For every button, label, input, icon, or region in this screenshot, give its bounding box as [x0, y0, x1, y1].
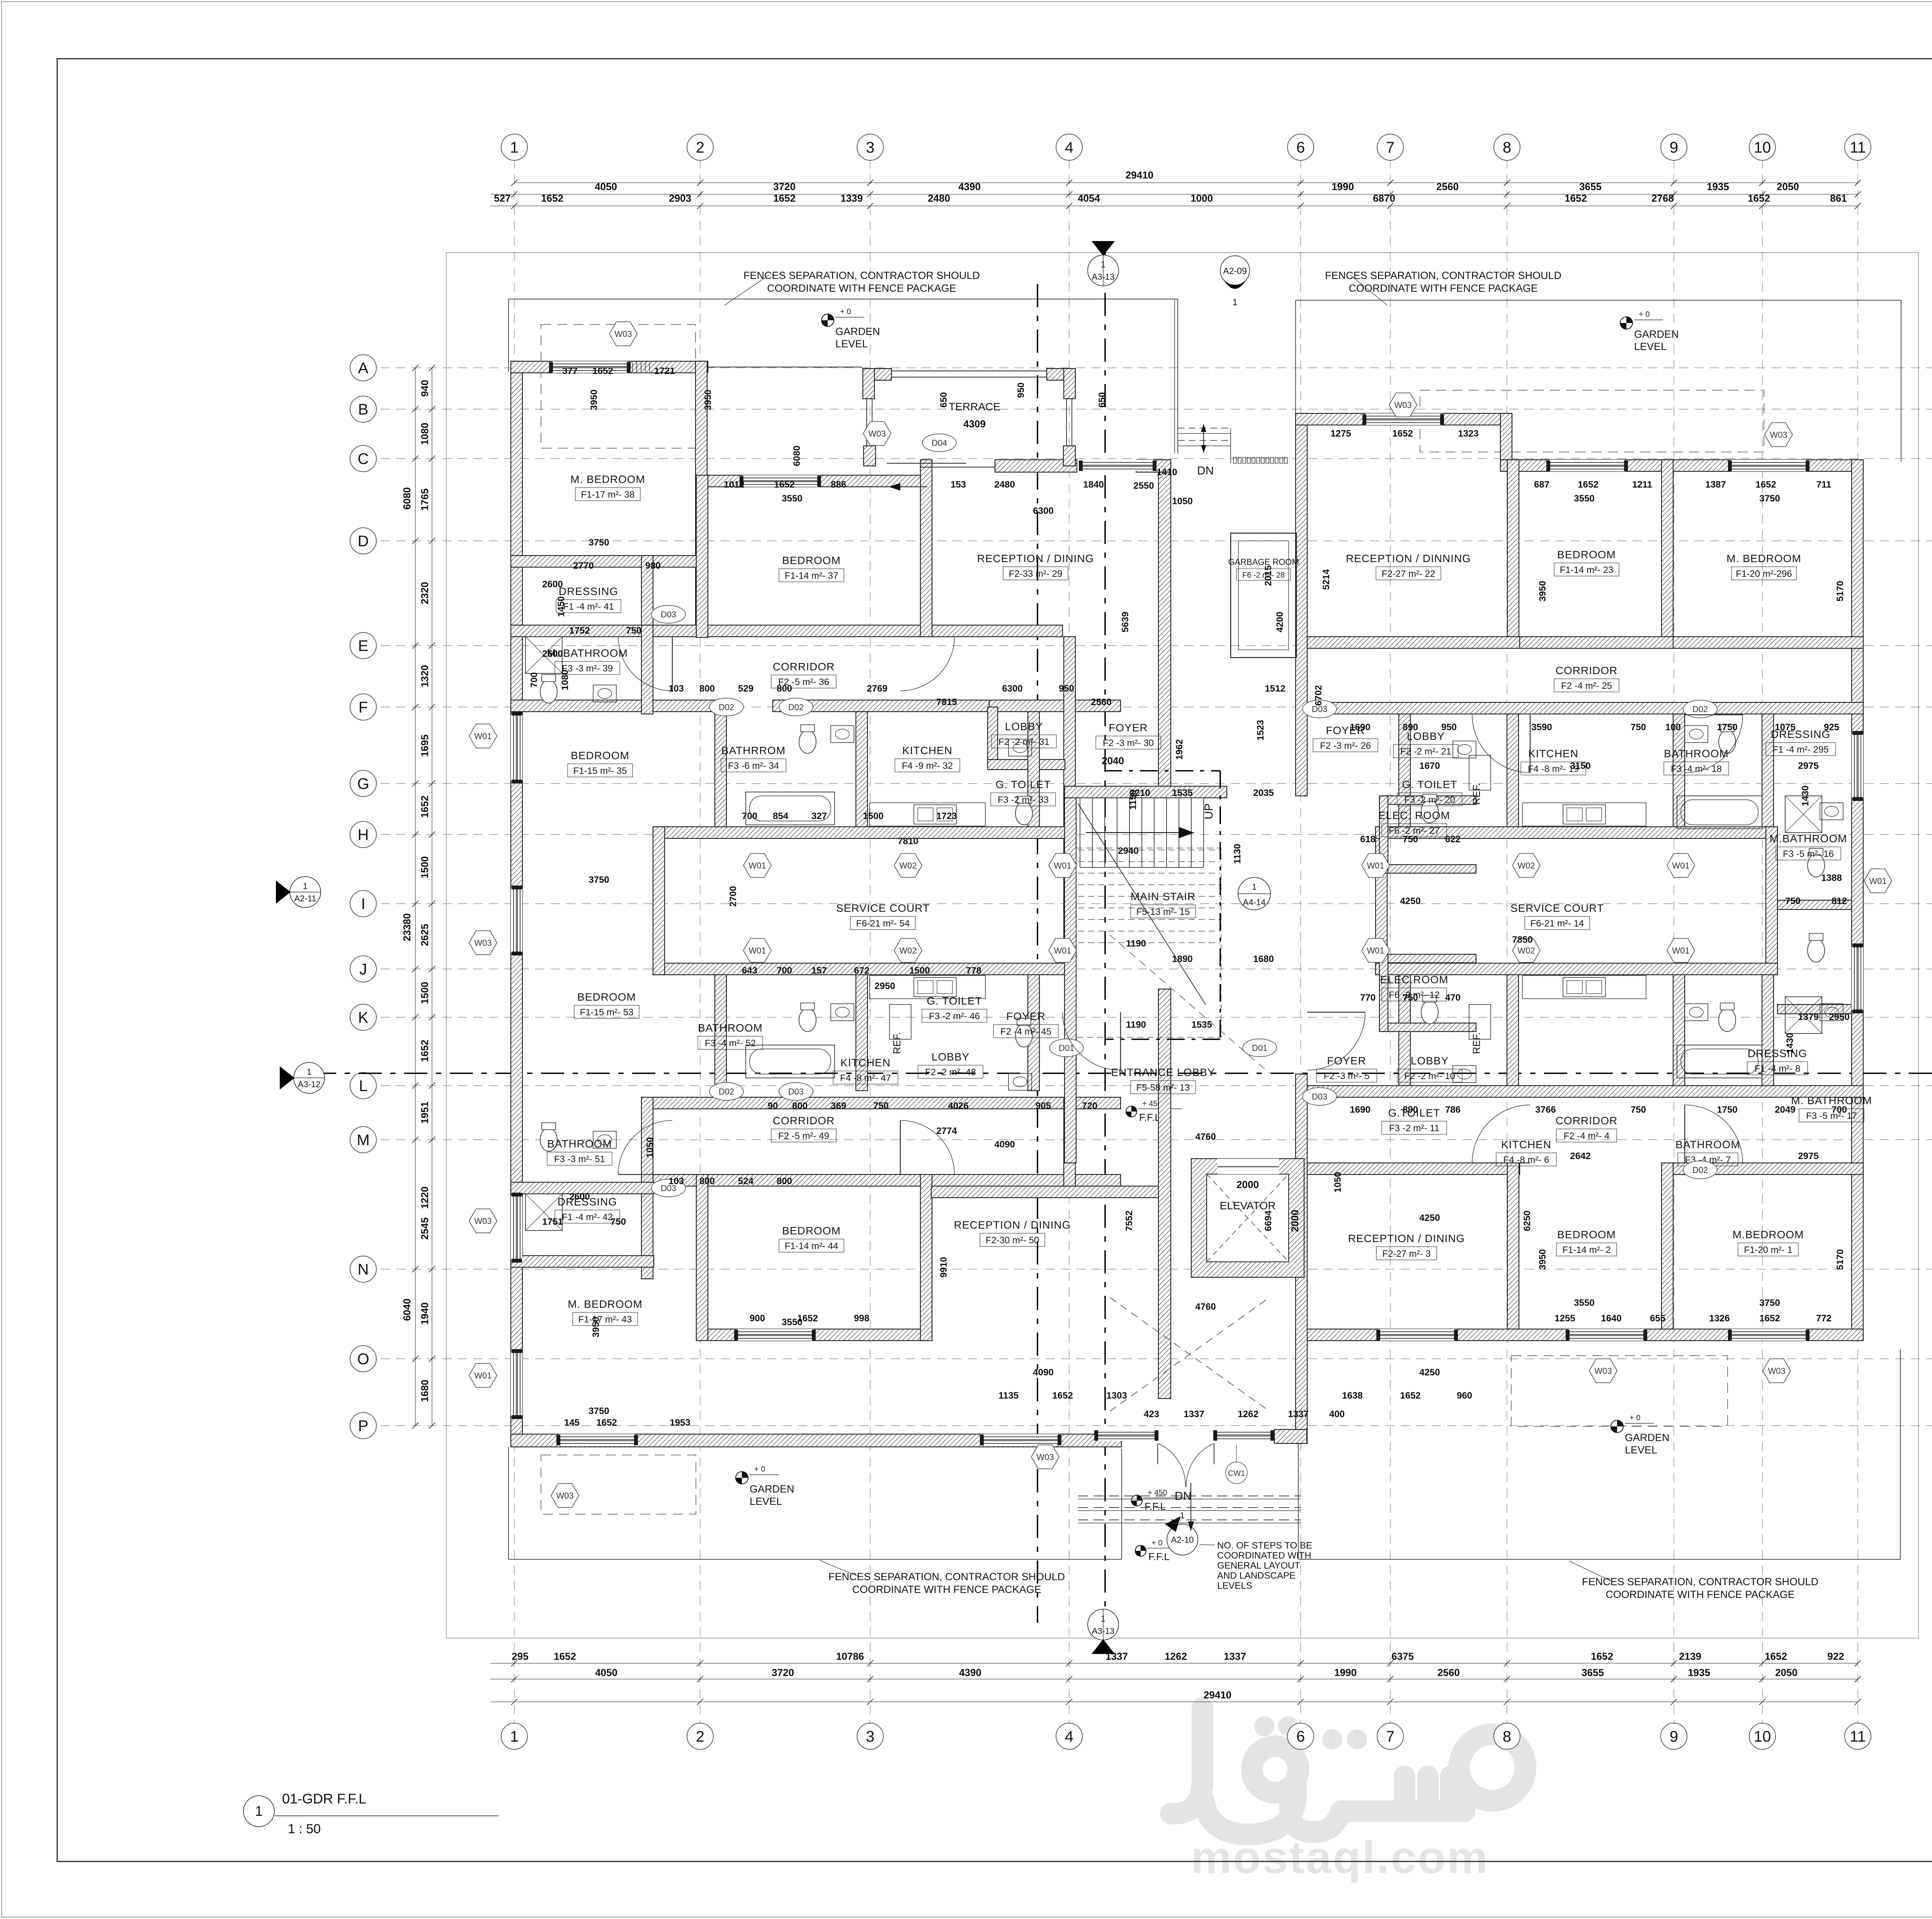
svg-text:1940: 1940	[1930, 1302, 1932, 1325]
svg-text:BEDROOM: BEDROOM	[782, 1225, 841, 1237]
svg-text:3550: 3550	[782, 493, 802, 504]
svg-text:F3 -2 m²- 11: F3 -2 m²- 11	[1389, 1123, 1439, 1134]
svg-text:4390: 4390	[958, 181, 981, 192]
svg-text:1990: 1990	[1334, 1667, 1357, 1678]
svg-text:2560: 2560	[1091, 697, 1111, 707]
svg-text:BEDROOM: BEDROOM	[1557, 1229, 1616, 1241]
svg-text:700: 700	[742, 811, 757, 821]
svg-text:3150: 3150	[1570, 761, 1590, 771]
svg-text:W03: W03	[868, 429, 886, 439]
svg-text:1000: 1000	[1190, 192, 1213, 204]
svg-text:2560: 2560	[1436, 181, 1459, 192]
svg-text:W01: W01	[474, 731, 492, 741]
svg-text:650: 650	[1097, 392, 1107, 408]
svg-text:LEVEL: LEVEL	[750, 1496, 782, 1507]
svg-text:4054: 4054	[1078, 192, 1100, 204]
svg-text:1690: 1690	[1350, 722, 1370, 733]
svg-text:M. BEDROOM: M. BEDROOM	[1726, 552, 1801, 564]
svg-text:D03: D03	[788, 1087, 804, 1096]
svg-text:ENTRANCE LOBBY: ENTRANCE LOBBY	[1111, 1066, 1215, 1078]
svg-text:W01: W01	[1054, 861, 1071, 870]
svg-text:940: 940	[1930, 380, 1932, 396]
svg-text:A3-13: A3-13	[1092, 1626, 1115, 1636]
svg-text:F2-27 m²- 3: F2-27 m²- 3	[1382, 1249, 1430, 1259]
svg-text:RECEPTION / DINING: RECEPTION / DINING	[977, 552, 1094, 564]
svg-text:F3 -6 m²- 34: F3 -6 m²- 34	[728, 761, 779, 771]
svg-text:1680: 1680	[1930, 1380, 1932, 1402]
svg-text:1723: 1723	[936, 811, 957, 821]
svg-text:3950: 3950	[1537, 1249, 1548, 1270]
svg-text:3550: 3550	[1574, 1298, 1594, 1308]
svg-text:1638: 1638	[1342, 1390, 1362, 1401]
svg-text:F5-58 m²- 13: F5-58 m²- 13	[1136, 1083, 1190, 1093]
svg-text:687: 687	[1534, 479, 1549, 490]
svg-text:153: 153	[951, 479, 966, 490]
svg-text:F2 -3 m²- 26: F2 -3 m²- 26	[1320, 741, 1371, 751]
svg-text:BATHRROM: BATHRROM	[721, 744, 786, 756]
svg-text:+ 0: + 0	[1629, 1414, 1640, 1422]
svg-text:1750: 1750	[1717, 1105, 1737, 1115]
svg-text:6300: 6300	[1033, 506, 1053, 516]
svg-text:1: 1	[303, 881, 308, 891]
svg-text:1387: 1387	[1705, 479, 1726, 490]
svg-text:G. TOILET: G. TOILET	[995, 778, 1051, 790]
svg-text:2320: 2320	[1930, 582, 1932, 604]
svg-text:812: 812	[1832, 896, 1847, 906]
svg-text:BEDROOM: BEDROOM	[571, 750, 629, 761]
svg-text:470: 470	[1445, 993, 1461, 1003]
svg-text:711: 711	[1816, 479, 1832, 490]
svg-text:1765: 1765	[1930, 488, 1932, 511]
svg-text:NO. OF STEPS TO BE: NO. OF STEPS TO BE	[1217, 1540, 1312, 1551]
svg-text:11: 11	[1850, 139, 1866, 156]
svg-text:3750: 3750	[588, 1406, 609, 1416]
svg-text:B: B	[358, 401, 369, 418]
svg-text:4250: 4250	[1419, 1367, 1440, 1378]
svg-text:377: 377	[562, 366, 578, 376]
svg-text:W03: W03	[1770, 430, 1787, 440]
svg-text:GARDEN: GARDEN	[835, 326, 880, 337]
svg-text:TERRACE: TERRACE	[949, 401, 1000, 413]
svg-text:FENCES SEPARATION, CONTRACTOR: FENCES SEPARATION, CONTRACTOR SHOULD	[1582, 1576, 1818, 1588]
svg-text:W03: W03	[614, 329, 632, 339]
svg-text:LEVEL: LEVEL	[1625, 1444, 1657, 1456]
svg-text:D02: D02	[1692, 704, 1708, 714]
svg-text:10786: 10786	[836, 1650, 864, 1662]
svg-text:2: 2	[696, 139, 704, 156]
svg-text:RECEPTION / DINING: RECEPTION / DINING	[954, 1219, 1071, 1231]
svg-text:3: 3	[866, 139, 874, 156]
svg-text:1012: 1012	[724, 479, 744, 490]
svg-text:1953: 1953	[670, 1418, 690, 1428]
svg-text:W02: W02	[899, 946, 917, 955]
svg-text:01-GDR F.F.L: 01-GDR F.F.L	[282, 1791, 366, 1807]
svg-text:KITCHEN: KITCHEN	[1528, 748, 1578, 760]
svg-text:AND LANDSCAPE: AND LANDSCAPE	[1217, 1571, 1296, 1581]
svg-text:5214: 5214	[1321, 569, 1332, 590]
svg-text:A2-11: A2-11	[294, 894, 316, 903]
svg-text:157: 157	[811, 965, 827, 976]
svg-text:854: 854	[773, 811, 789, 821]
svg-text:GENERAL LAYOUT: GENERAL LAYOUT	[1217, 1560, 1300, 1571]
svg-text:1337: 1337	[1288, 1409, 1308, 1419]
svg-text:F1-15 m²- 53: F1-15 m²- 53	[580, 1007, 634, 1018]
svg-text:327: 327	[811, 811, 827, 821]
svg-text:COORDINATE WITH FENCE PACKAGE: COORDINATE WITH FENCE PACKAGE	[852, 1584, 1041, 1595]
svg-text:1751: 1751	[542, 1217, 563, 1227]
svg-text:1652: 1652	[1765, 1650, 1787, 1662]
svg-text:F2 -2 m²- 48: F2 -2 m²- 48	[925, 1067, 976, 1078]
svg-text:2642: 2642	[1570, 1151, 1590, 1161]
svg-text:1765: 1765	[419, 488, 430, 511]
svg-text:1080: 1080	[1930, 423, 1932, 445]
svg-text:1130: 1130	[1232, 844, 1243, 864]
svg-text:1652: 1652	[773, 192, 796, 204]
svg-text:4250: 4250	[1419, 1213, 1440, 1223]
svg-text:F1 -4 m²- 295: F1 -4 m²- 295	[1772, 744, 1828, 755]
svg-text:2625: 2625	[1930, 924, 1932, 946]
svg-text:890: 890	[1403, 722, 1418, 733]
svg-text:2035: 2035	[1253, 788, 1274, 798]
svg-text:6080: 6080	[401, 487, 413, 510]
svg-text:369: 369	[831, 1101, 846, 1111]
svg-text:700: 700	[1832, 1105, 1847, 1115]
svg-text:950: 950	[1441, 722, 1457, 733]
svg-text:COORDINATE WITH FENCE PACKAGE: COORDINATE WITH FENCE PACKAGE	[1605, 1589, 1795, 1600]
svg-text:F1-17 m²- 38: F1-17 m²- 38	[581, 490, 635, 500]
svg-text:650: 650	[939, 392, 949, 408]
svg-text:2975: 2975	[1798, 761, 1818, 771]
svg-text:W01: W01	[1367, 946, 1384, 955]
svg-text:1951: 1951	[419, 1101, 430, 1124]
svg-text:F2 -2 m²- 21: F2 -2 m²- 21	[1400, 746, 1451, 757]
svg-text:1 : 50: 1 : 50	[288, 1822, 321, 1836]
svg-text:DN: DN	[1175, 1490, 1191, 1503]
svg-text:1: 1	[1101, 1614, 1105, 1623]
svg-text:W03: W03	[1036, 1452, 1054, 1462]
svg-text:998: 998	[854, 1313, 869, 1324]
svg-text:1680: 1680	[1253, 954, 1274, 964]
svg-text:FENCES SEPARATION, CONTRACTOR: FENCES SEPARATION, CONTRACTOR SHOULD	[1325, 270, 1561, 281]
svg-text:A3-12: A3-12	[298, 1079, 321, 1089]
svg-text:1840: 1840	[1083, 479, 1104, 490]
svg-text:RECEPTION / DINING: RECEPTION / DINING	[1348, 1232, 1465, 1244]
svg-text:4090: 4090	[994, 1139, 1015, 1150]
svg-text:2975: 2975	[1798, 1151, 1818, 1161]
svg-text:LOBBY: LOBBY	[1005, 721, 1043, 733]
svg-text:4760: 4760	[1195, 1302, 1216, 1312]
svg-text:4026: 4026	[948, 1101, 968, 1111]
svg-text:861: 861	[1830, 192, 1847, 204]
svg-text:5639: 5639	[1120, 612, 1131, 632]
svg-text:1430: 1430	[1800, 785, 1811, 806]
svg-text:1652: 1652	[592, 366, 613, 376]
svg-text:1990: 1990	[1332, 181, 1354, 192]
svg-text:W03: W03	[1394, 400, 1412, 410]
svg-text:7850: 7850	[1512, 935, 1532, 945]
svg-text:6375: 6375	[1391, 1650, 1414, 1662]
svg-text:REF.: REF.	[891, 1032, 903, 1054]
svg-text:F2-33 m²- 29: F2-33 m²- 29	[1009, 569, 1063, 579]
svg-text:1890: 1890	[1172, 954, 1192, 964]
svg-text:C: C	[358, 450, 369, 467]
svg-text:1535: 1535	[1191, 1020, 1212, 1030]
svg-text:4250: 4250	[1400, 896, 1420, 906]
svg-text:W02: W02	[899, 861, 917, 870]
svg-text:100: 100	[1665, 722, 1681, 733]
svg-text:W03: W03	[1768, 1366, 1785, 1376]
svg-text:1323: 1323	[1458, 428, 1478, 439]
svg-text:7810: 7810	[898, 836, 918, 846]
svg-text:2600: 2600	[542, 579, 563, 590]
svg-text:6040: 6040	[401, 1299, 413, 1321]
svg-text:F3 -2 m²- 33: F3 -2 m²- 33	[998, 795, 1049, 805]
svg-text:F3 -5 m²- 16: F3 -5 m²- 16	[1783, 849, 1834, 859]
svg-text:A2-09: A2-09	[1223, 266, 1247, 276]
svg-text:BEDROOM: BEDROOM	[1557, 549, 1616, 561]
svg-text:W01: W01	[1054, 946, 1071, 955]
svg-text:D03: D03	[661, 610, 676, 619]
svg-text:750: 750	[1403, 834, 1418, 845]
svg-text:1388: 1388	[1821, 873, 1842, 883]
svg-text:618: 618	[1360, 834, 1376, 845]
svg-text:L: L	[359, 1078, 367, 1095]
svg-text:3950: 3950	[591, 1317, 601, 1337]
svg-text:2625: 2625	[419, 924, 430, 946]
svg-text:1326: 1326	[1709, 1313, 1730, 1324]
svg-text:CW1: CW1	[1228, 1469, 1245, 1478]
svg-text:F2 -4 m²- 25: F2 -4 m²- 25	[1561, 681, 1612, 691]
svg-text:W03: W03	[1594, 1366, 1612, 1376]
svg-text:1652: 1652	[554, 1650, 576, 1662]
svg-text:F2 -3 m²- 5: F2 -3 m²- 5	[1324, 1071, 1370, 1081]
svg-text:6702: 6702	[1313, 685, 1324, 705]
svg-text:RECEPTION / DINNING: RECEPTION / DINNING	[1346, 552, 1471, 564]
svg-text:11: 11	[1850, 1728, 1866, 1745]
svg-text:1652: 1652	[774, 479, 794, 490]
svg-text:1652: 1652	[541, 192, 563, 204]
svg-text:2903: 2903	[669, 192, 691, 204]
svg-text:4050: 4050	[595, 1667, 617, 1678]
svg-text:4090: 4090	[1033, 1367, 1053, 1378]
svg-text:1050: 1050	[1333, 1172, 1343, 1192]
svg-text:2560: 2560	[1437, 1667, 1460, 1678]
svg-text:N: N	[358, 1261, 369, 1278]
svg-text:W01: W01	[1672, 946, 1689, 955]
svg-text:29410: 29410	[1204, 1689, 1231, 1701]
svg-text:950: 950	[1016, 382, 1026, 398]
svg-text:LOBBY: LOBBY	[932, 1051, 969, 1063]
svg-text:6694: 6694	[1263, 1210, 1274, 1231]
svg-text:COORDINATED WITH: COORDINATED WITH	[1217, 1550, 1311, 1561]
svg-text:4: 4	[1065, 139, 1073, 156]
svg-text:750: 750	[1785, 896, 1801, 906]
svg-text:D02: D02	[719, 702, 734, 712]
svg-text:655: 655	[1650, 1313, 1665, 1324]
svg-text:3720: 3720	[772, 1667, 794, 1678]
svg-text:3720: 3720	[773, 181, 796, 192]
svg-text:D04: D04	[932, 438, 947, 448]
svg-text:905: 905	[1036, 1101, 1051, 1111]
svg-text:720: 720	[1082, 1101, 1097, 1111]
svg-text:G. TOILET: G. TOILET	[927, 995, 982, 1007]
svg-text:925: 925	[1824, 722, 1839, 733]
svg-text:2600: 2600	[569, 1192, 590, 1202]
svg-text:4050: 4050	[595, 181, 617, 192]
svg-text:F.F.L: F.F.L	[1148, 1551, 1170, 1562]
svg-text:COORDINATE WITH FENCE PACKAGE: COORDINATE WITH FENCE PACKAGE	[1349, 282, 1538, 294]
svg-text:2139: 2139	[1679, 1650, 1701, 1662]
svg-text:1695: 1695	[1930, 734, 1932, 757]
svg-text:F1-20 m²- 1: F1-20 m²- 1	[1744, 1245, 1792, 1255]
svg-text:1320: 1320	[419, 665, 430, 687]
svg-text:REF.: REF.	[1471, 783, 1482, 805]
svg-text:1: 1	[1101, 260, 1105, 269]
svg-text:1500: 1500	[419, 856, 430, 879]
svg-text:W03: W03	[474, 938, 492, 948]
svg-text:1080: 1080	[419, 423, 430, 445]
svg-text:950: 950	[1059, 683, 1074, 694]
svg-text:F1-14 m²- 44: F1-14 m²- 44	[785, 1241, 838, 1251]
svg-text:2050: 2050	[1775, 1667, 1798, 1678]
svg-text:A: A	[358, 360, 369, 377]
svg-text:1: 1	[510, 139, 519, 156]
svg-text:W01: W01	[1869, 876, 1886, 886]
svg-text:1500: 1500	[1930, 856, 1932, 879]
svg-text:2770: 2770	[573, 561, 594, 571]
svg-text:M. BEDROOM: M. BEDROOM	[570, 473, 645, 485]
svg-text:BATHROOM: BATHROOM	[698, 1022, 763, 1034]
svg-text:CORRIDOR: CORRIDOR	[773, 661, 835, 673]
svg-text:D01: D01	[1059, 1043, 1074, 1053]
svg-text:1523: 1523	[1255, 720, 1266, 740]
svg-text:1190: 1190	[1126, 938, 1146, 949]
svg-text:2040: 2040	[1102, 755, 1124, 767]
svg-text:1320: 1320	[1930, 665, 1932, 687]
svg-text:700: 700	[777, 965, 792, 976]
svg-text:145: 145	[564, 1418, 580, 1428]
svg-text:1652: 1652	[1755, 479, 1776, 490]
svg-text:1640: 1640	[1601, 1313, 1621, 1324]
svg-text:800: 800	[777, 1176, 792, 1186]
svg-text:1275: 1275	[1330, 428, 1351, 439]
svg-text:+ 0: + 0	[840, 308, 851, 316]
svg-text:3950: 3950	[703, 389, 713, 410]
svg-text:F.F.L: F.F.L	[1139, 1112, 1160, 1123]
svg-text:1695: 1695	[419, 734, 430, 757]
svg-text:2700: 2700	[728, 886, 738, 906]
svg-text:F1-15 m²- 35: F1-15 m²- 35	[573, 766, 627, 776]
svg-text:FENCES SEPARATION, CONTRACTOR: FENCES SEPARATION, CONTRACTOR SHOULD	[828, 1571, 1065, 1582]
svg-text:800: 800	[777, 683, 792, 694]
svg-text:P: P	[358, 1418, 369, 1435]
svg-text:400: 400	[1329, 1409, 1345, 1419]
svg-text:922: 922	[1827, 1650, 1844, 1662]
svg-text:2545: 2545	[419, 1217, 430, 1240]
svg-text:772: 772	[1816, 1313, 1832, 1324]
svg-text:1652: 1652	[1759, 1313, 1780, 1324]
svg-text:A2-10: A2-10	[1171, 1535, 1194, 1545]
svg-text:ELEC. ROOM: ELEC. ROOM	[1378, 809, 1450, 821]
svg-text:886: 886	[831, 479, 846, 490]
svg-text:1652: 1652	[1392, 428, 1413, 439]
svg-text:700: 700	[529, 672, 539, 688]
svg-text:672: 672	[854, 965, 869, 976]
svg-text:M.BEDROOM: M.BEDROOM	[1733, 1229, 1804, 1241]
svg-text:1512: 1512	[1265, 683, 1285, 694]
svg-text:1721: 1721	[654, 366, 675, 376]
svg-text:1211: 1211	[1632, 479, 1652, 490]
svg-text:F5-13 m²- 15: F5-13 m²- 15	[1136, 907, 1190, 917]
svg-text:D03: D03	[1312, 1092, 1327, 1101]
svg-text:6870: 6870	[1373, 192, 1395, 204]
svg-text:1690: 1690	[1350, 1105, 1370, 1115]
svg-text:980: 980	[645, 561, 661, 571]
svg-text:K: K	[358, 1009, 369, 1026]
svg-text:I: I	[361, 896, 365, 913]
svg-text:2049: 2049	[1775, 1105, 1795, 1115]
svg-text:750: 750	[1631, 1105, 1646, 1115]
svg-text:1303: 1303	[1106, 1390, 1127, 1401]
svg-text:F: F	[359, 699, 368, 716]
svg-text:2769: 2769	[867, 683, 887, 694]
svg-text:FOYER: FOYER	[1327, 1055, 1366, 1067]
svg-text:F6-21 m²- 14: F6-21 m²- 14	[1531, 918, 1584, 929]
svg-text:2940: 2940	[1118, 846, 1138, 856]
svg-text:3750: 3750	[588, 537, 609, 548]
svg-text:1255: 1255	[1554, 1313, 1575, 1324]
svg-text:9910: 9910	[939, 1257, 949, 1277]
svg-text:90: 90	[768, 1101, 778, 1111]
svg-text:2950: 2950	[874, 981, 895, 991]
svg-text:F2 -4 m²- 45: F2 -4 m²- 45	[1000, 1027, 1051, 1037]
svg-text:1500: 1500	[909, 965, 930, 976]
svg-text:750: 750	[626, 626, 641, 636]
svg-text:940: 940	[419, 380, 430, 396]
svg-text:529: 529	[738, 683, 753, 694]
svg-text:4: 4	[1065, 1728, 1073, 1745]
svg-text:1337: 1337	[1184, 1409, 1204, 1419]
svg-text:SERVICE COURT: SERVICE COURT	[1510, 902, 1604, 914]
svg-text:F2-27 m²- 22: F2-27 m²- 22	[1382, 569, 1435, 579]
svg-text:800: 800	[699, 683, 715, 694]
svg-text:2480: 2480	[994, 479, 1015, 490]
svg-text:1050: 1050	[1172, 496, 1192, 507]
svg-text:M.BATHROOM: M.BATHROOM	[1770, 833, 1847, 845]
svg-text:GARDEN: GARDEN	[1634, 328, 1679, 340]
svg-text:FENCES SEPARATION, CONTRACTOR: FENCES SEPARATION, CONTRACTOR SHOULD	[743, 270, 980, 281]
svg-text:10: 10	[1754, 139, 1771, 156]
svg-text:D02: D02	[1692, 1165, 1708, 1175]
svg-text:1652: 1652	[1930, 1040, 1932, 1062]
svg-text:6080: 6080	[792, 445, 802, 466]
svg-text:DRESSING: DRESSING	[559, 585, 618, 597]
svg-text:1: 1	[1232, 297, 1237, 308]
svg-text:F1-17 m²- 43: F1-17 m²- 43	[578, 1314, 632, 1325]
svg-text:F1-14 m²- 37: F1-14 m²- 37	[785, 571, 838, 581]
svg-text:1262: 1262	[1238, 1409, 1258, 1419]
svg-text:3655: 3655	[1582, 1667, 1604, 1678]
svg-text:1935: 1935	[1707, 181, 1729, 192]
svg-text:8: 8	[1503, 1728, 1511, 1745]
svg-text:1951: 1951	[1930, 1101, 1932, 1124]
svg-text:2550: 2550	[1133, 481, 1154, 491]
svg-text:6: 6	[1296, 1728, 1305, 1745]
svg-text:23380: 23380	[401, 913, 413, 941]
svg-text:G: G	[357, 775, 369, 792]
svg-text:F3 -2 m²- 20: F3 -2 m²- 20	[1404, 795, 1455, 805]
svg-text:1652: 1652	[419, 1040, 430, 1062]
